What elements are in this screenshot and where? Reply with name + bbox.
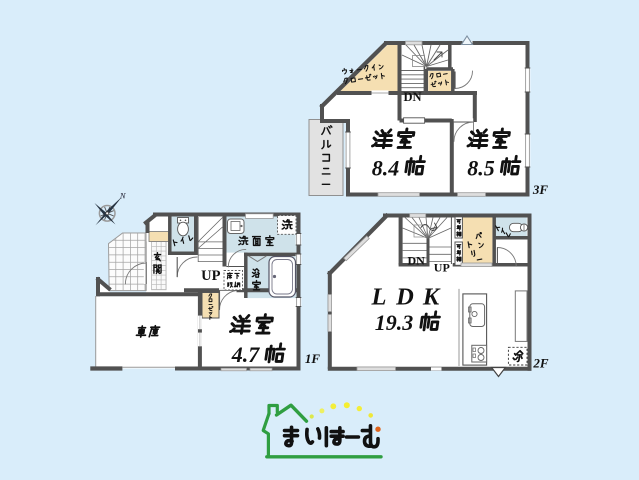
svg-text:DN: DN bbox=[408, 254, 426, 268]
svg-text:19.3: 19.3 bbox=[375, 310, 414, 335]
svg-text:8.5: 8.5 bbox=[467, 156, 495, 181]
svg-text:2F: 2F bbox=[532, 356, 549, 371]
svg-text:UP: UP bbox=[201, 268, 220, 284]
svg-text:K: K bbox=[422, 284, 441, 311]
svg-text:8.4: 8.4 bbox=[372, 156, 400, 181]
svg-text:D: D bbox=[395, 284, 414, 311]
svg-text:DN: DN bbox=[403, 90, 421, 104]
svg-text:L: L bbox=[371, 284, 387, 311]
svg-text:UP: UP bbox=[434, 261, 450, 275]
svg-text:1F: 1F bbox=[305, 351, 321, 366]
svg-text:3F: 3F bbox=[532, 182, 549, 197]
svg-text:4.7: 4.7 bbox=[231, 342, 261, 367]
